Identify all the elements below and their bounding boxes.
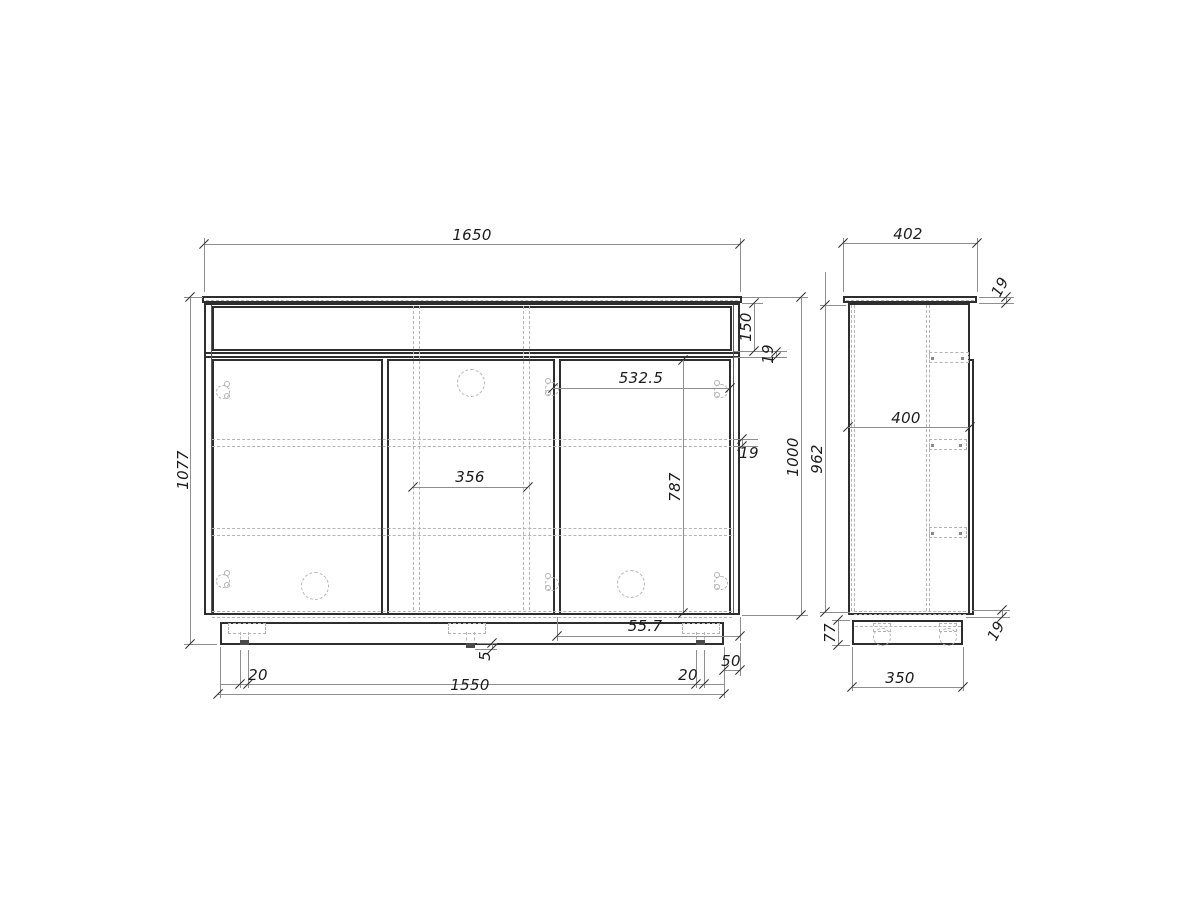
divider-line bbox=[206, 356, 738, 358]
caster-wheel bbox=[939, 628, 957, 646]
top-panel-hidden-edge bbox=[206, 300, 738, 301]
bottom-hidden-line bbox=[212, 611, 732, 612]
side-carcass bbox=[848, 303, 970, 615]
dim-plinth-width-label: 1550 bbox=[450, 676, 489, 694]
top-panel-hidden-edge bbox=[846, 300, 974, 301]
leg-plate bbox=[228, 623, 266, 634]
dimension-line bbox=[218, 694, 724, 695]
dimension-line bbox=[477, 643, 497, 644]
divider-line bbox=[206, 352, 738, 354]
partition-hidden-line bbox=[929, 305, 930, 611]
dim-plinth-right-offset-label: 55.7 bbox=[628, 617, 663, 635]
dimension-line bbox=[972, 610, 1010, 611]
dimension-line bbox=[852, 687, 963, 688]
shelf-hidden-line bbox=[212, 439, 732, 440]
leg-plate bbox=[448, 623, 486, 634]
hinge-screw bbox=[714, 380, 720, 386]
shelf-hidden-line bbox=[212, 535, 732, 536]
shelf-pin bbox=[959, 532, 962, 535]
dim-plinth-height-label: 77 bbox=[821, 623, 839, 643]
hinge-screw bbox=[224, 393, 230, 399]
dim-center-leg-protrusion-label: 5 bbox=[476, 651, 494, 661]
hinge-screw bbox=[714, 572, 720, 578]
dim-shelf-thickness-label: 19 bbox=[739, 444, 759, 462]
dimension-line bbox=[977, 238, 978, 292]
dim-left-leg-width-label: 20 bbox=[248, 666, 268, 684]
dimension-line bbox=[557, 617, 558, 641]
partition-hidden-line bbox=[413, 306, 414, 610]
dimension-line bbox=[966, 617, 1010, 618]
hinge-screw bbox=[224, 570, 230, 576]
door-left bbox=[212, 359, 383, 615]
dimension-line bbox=[204, 244, 740, 245]
partition-hidden-line bbox=[419, 306, 420, 610]
shelf-pin bbox=[931, 357, 934, 360]
dim-carcass-height-label: 1000 bbox=[784, 437, 802, 476]
back-panel-hidden-line bbox=[854, 305, 855, 611]
dimension-line bbox=[413, 487, 528, 488]
dim-overall-depth-label: 402 bbox=[893, 225, 923, 243]
hinge-screw bbox=[714, 584, 720, 590]
dimension-line bbox=[979, 303, 1014, 304]
side-door-edge bbox=[968, 359, 974, 615]
dim-right-door-width-label: 532.5 bbox=[619, 369, 663, 387]
leg-foot bbox=[240, 640, 249, 645]
cable-hole bbox=[617, 570, 645, 598]
dimension-line bbox=[740, 238, 741, 292]
bottom-hidden-line bbox=[854, 611, 966, 612]
caster-wheel bbox=[873, 628, 891, 646]
dim-door-height-label: 787 bbox=[666, 472, 684, 502]
dim-inner-depth-label: 400 bbox=[891, 409, 921, 427]
dim-right-leg-width-label: 20 bbox=[678, 666, 698, 684]
cable-hole bbox=[457, 369, 485, 397]
hinge-screw bbox=[224, 381, 230, 387]
leg-plate bbox=[682, 623, 720, 634]
bottom-hidden-line bbox=[854, 614, 966, 615]
shelf-hidden-line bbox=[212, 446, 732, 447]
dimension-line bbox=[825, 272, 826, 612]
dim-side-panel-height-label: 962 bbox=[808, 444, 826, 474]
shelf-pin bbox=[959, 444, 962, 447]
inner-wall-line bbox=[211, 305, 212, 613]
partition-hidden-line bbox=[523, 306, 524, 610]
shelf-pin bbox=[961, 357, 964, 360]
dimension-line bbox=[204, 238, 205, 292]
drawer-front bbox=[212, 306, 732, 351]
dimension-line bbox=[553, 388, 730, 389]
hinge-screw bbox=[545, 378, 551, 384]
leg-foot bbox=[696, 640, 705, 645]
dimension-line bbox=[848, 427, 970, 428]
hinge-screw bbox=[224, 582, 230, 588]
partition-hidden-line bbox=[926, 305, 927, 611]
dim-overall-height-label: 1077 bbox=[174, 450, 192, 489]
back-panel-hidden-line bbox=[851, 305, 852, 611]
dim-divider-thickness-label: 19 bbox=[759, 344, 777, 364]
shelf-hidden-line bbox=[212, 528, 732, 529]
drawing-sheet: 16501077150191000532.51935678755.7505201… bbox=[0, 0, 1200, 900]
dim-drawer-height-label: 150 bbox=[737, 312, 755, 342]
hinge-screw bbox=[545, 585, 551, 591]
leg-foot bbox=[466, 643, 475, 648]
partition-hidden-line bbox=[529, 306, 530, 610]
hinge-screw bbox=[545, 573, 551, 579]
door-right bbox=[559, 359, 731, 615]
shelf-pin bbox=[931, 532, 934, 535]
dimension-line bbox=[475, 649, 497, 650]
dimension-line bbox=[843, 238, 844, 292]
dim-plinth-depth-label: 350 bbox=[885, 669, 915, 687]
hinge-screw bbox=[714, 392, 720, 398]
shelf-pin bbox=[931, 444, 934, 447]
dim-plinth-side-inset-label: 50 bbox=[721, 652, 741, 670]
dimension-line bbox=[557, 636, 740, 637]
dim-partition-spacing-label: 356 bbox=[455, 468, 485, 486]
dimension-line bbox=[740, 617, 741, 641]
cable-hole bbox=[301, 572, 329, 600]
dimension-line bbox=[843, 243, 977, 244]
dim-overall-width-label: 1650 bbox=[452, 226, 491, 244]
